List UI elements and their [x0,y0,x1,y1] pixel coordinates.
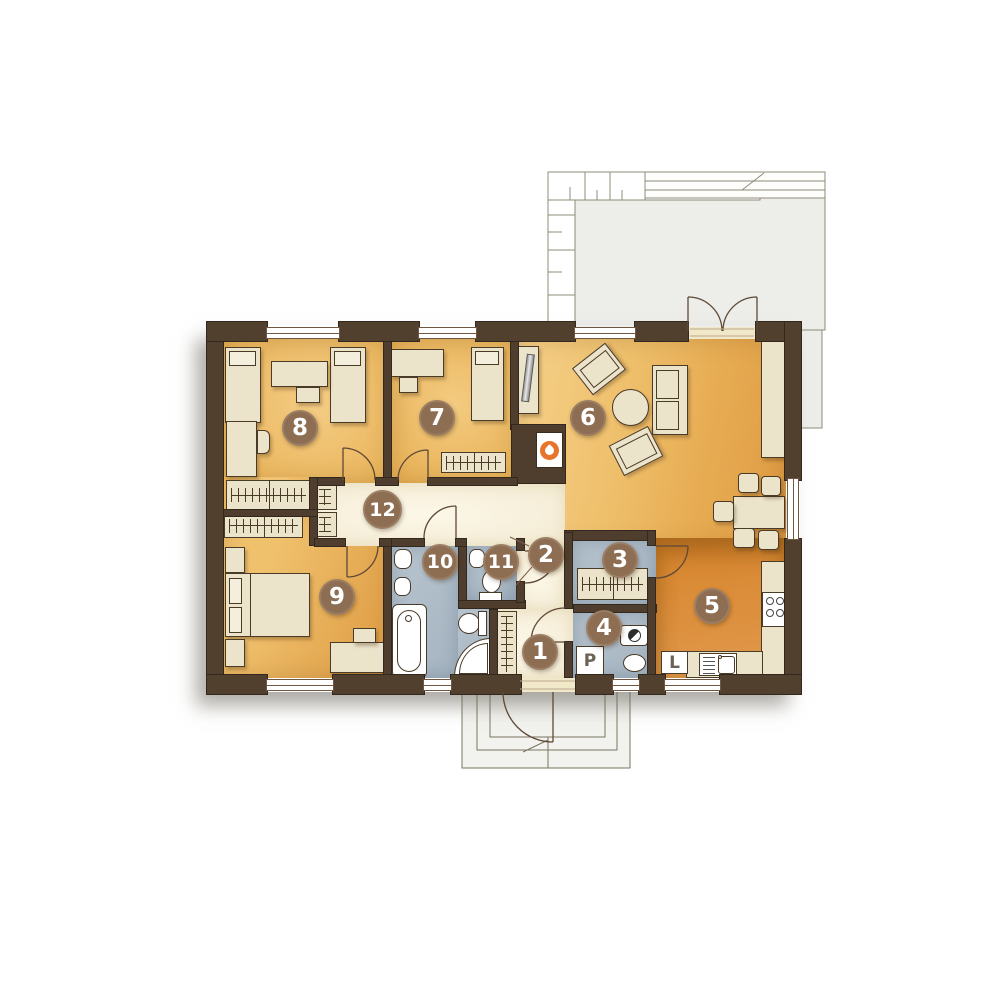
nightstand-small [296,387,320,403]
exterior-wall-right [784,321,802,481]
entry-threshold [518,678,575,692]
chair-room-8 [257,430,270,454]
washing-machine-label: P [584,651,596,671]
wall [564,641,573,678]
wall [391,538,425,547]
exterior-wall-top [475,321,576,342]
dining-chair [758,530,779,550]
badge-number: 10 [427,551,453,573]
badge-number: 12 [369,499,395,521]
wall [564,530,656,541]
entry-porch [462,692,630,768]
hanger-rail-icon [319,517,331,532]
dining-chair [733,528,755,548]
wall [458,546,467,602]
desk-riser-room-9 [353,628,376,643]
window-room-9 [266,679,334,691]
fireplace-icon [540,441,559,460]
room-badge-8: 8 [282,410,318,446]
boiler-icon [620,625,648,646]
exterior-wall-bottom [332,674,425,695]
room-badge-9: 9 [319,579,355,615]
room-badge-5: 5 [694,588,730,624]
exterior-wall-bottom [638,674,666,695]
dining-chair [738,473,759,493]
wall [516,538,525,551]
window-room-7 [418,327,477,339]
desk-room-7 [391,349,444,377]
badge-number: 3 [612,547,628,573]
room-badge-2: 2 [528,537,564,573]
room-12-hallway-floor [314,483,565,546]
room-badge-1: 1 [522,634,558,670]
bathtub-icon [392,604,427,678]
sofa-cushion [656,370,679,399]
exterior-wall-bottom [719,674,802,695]
flame-icon [543,444,556,457]
burner [776,597,784,605]
cooktop-icon [762,592,786,627]
wall [647,530,656,546]
badge-number: 6 [580,405,596,431]
wall [573,604,657,613]
terrace-side-strip [800,330,822,428]
nightstand-1 [225,547,245,573]
exterior-wall-bottom [450,674,522,695]
porch-outer-step [462,692,630,768]
exterior-wall-bottom [206,674,268,695]
terrace-plank-band [645,172,825,198]
wall [427,477,518,486]
exterior-wall-left [206,321,224,695]
fridge-label: L [669,653,680,673]
dining-chair [713,501,734,522]
badge-number: 2 [538,542,554,568]
wall [516,581,525,603]
boiler-dial [628,629,641,642]
desk-room-9 [330,642,384,673]
bed-single-1 [225,347,261,423]
room-badge-10: 10 [422,544,458,580]
badge-number: 7 [429,405,445,431]
wall [489,609,498,678]
window-kitchen [664,679,721,691]
dining-table [733,496,785,529]
bed-double [225,573,310,637]
pillow [229,607,242,633]
room-badge-11: 11 [483,544,519,580]
toilet-tank [478,611,487,636]
dresser-divider [474,453,475,472]
wall [314,477,345,486]
dining-chair [761,476,781,496]
bed-single-3 [471,347,504,421]
sofa [652,365,688,435]
utility-sink-icon [623,654,646,672]
pillow [229,351,256,366]
washbasin-icon [394,577,411,596]
wall [383,339,392,480]
pillow [334,351,361,366]
blanket-line [250,574,251,636]
bathtub-drain [405,615,412,622]
wall [375,477,399,486]
wall [647,577,656,678]
badge-number: 9 [329,584,345,610]
pillow [475,351,499,365]
nightstand-wide [271,361,328,387]
window-bathroom [423,679,452,691]
porch-step-marks [523,737,548,768]
room-badge-6: 6 [570,400,606,436]
burner [766,597,774,605]
exterior-wall-top [338,321,420,342]
dresser-room-7 [441,452,506,473]
kitchen-sink-icon [699,653,737,676]
washing-machine-icon: P [576,646,604,675]
drainboard-lines [703,657,715,674]
toilet-icon [458,613,480,634]
terrace-slab [548,172,825,330]
wall [314,538,346,547]
room-badge-12: 12 [363,490,402,529]
wall [510,339,519,430]
hanger-rail-icon [319,489,331,505]
burner [766,609,774,617]
badge-number: 4 [596,615,612,641]
wall [564,532,573,609]
window-dining [787,478,799,540]
room-badge-3: 3 [602,542,638,578]
porch-middle-step [477,692,617,750]
badge-number: 1 [532,639,548,665]
door-arc-entry [503,692,553,742]
coffee-table-round [612,389,649,426]
terrace-deck-strip-left [548,200,575,330]
room-badge-4: 4 [586,610,622,646]
terrace-door-threshold [689,327,755,339]
exterior-wall-top [634,321,689,342]
burner [776,609,784,617]
pillow [229,578,242,604]
terrace-deck-strip-top [548,172,760,200]
desk-room-8 [226,421,257,477]
exterior-wall-right [784,538,802,695]
badge-number: 5 [704,593,720,619]
fireplace-box [536,432,563,468]
wall [222,509,318,517]
wardrobe-room-8 [226,480,311,510]
drawer-room-7 [399,377,418,393]
window-utility [612,679,640,691]
wall [383,546,392,678]
floor-plan-canvas: P L [0,0,1000,1000]
exterior-wall-bottom [575,674,614,695]
room-badge-7: 7 [419,400,455,436]
wardrobe-divider [264,514,265,537]
exterior-wall-top [206,321,268,342]
badge-number: 8 [292,415,308,441]
washbasin-icon [394,549,412,569]
wardrobe-divider [269,481,270,509]
window-room-8 [266,327,340,339]
window-living-room [574,327,636,339]
nightstand-2 [225,639,245,667]
hanger-rail-icon [501,616,513,672]
entry-hall-cabinet [496,611,517,677]
faucet [718,655,722,659]
sofa-cushion [656,401,679,430]
porch-inner-step [490,692,605,737]
bed-single-2 [330,347,366,423]
fridge-icon: L [661,651,688,674]
badge-number: 11 [488,551,514,573]
